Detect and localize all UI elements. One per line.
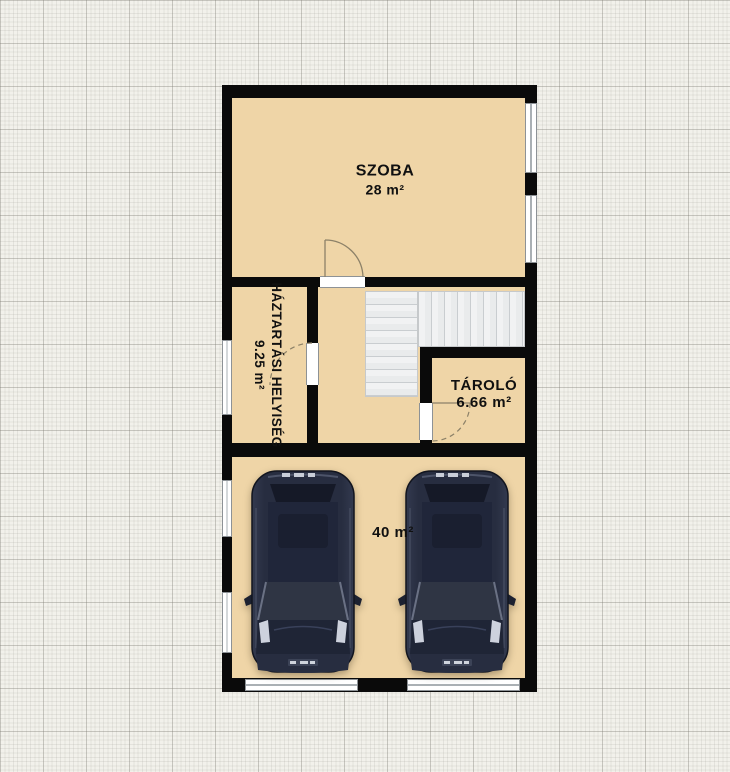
room-area-tarolo: 6.66 m² bbox=[451, 394, 517, 411]
stair-run-left[interactable] bbox=[365, 291, 418, 397]
floor-plan: SZOBA 28 m² HÁZTARTÁSI HELYISÉG 9.25 m² … bbox=[222, 85, 537, 692]
room-label-tarolo: TÁROLÓ 6.66 m² bbox=[451, 377, 517, 411]
room-area-haztartasi: 9.25 m² bbox=[251, 282, 268, 448]
garage-door-right[interactable] bbox=[407, 679, 520, 691]
room-name-szoba: SZOBA bbox=[356, 162, 415, 181]
wall-tarolo-top bbox=[420, 347, 525, 358]
room-area-szoba: 28 m² bbox=[356, 181, 415, 199]
window-garage-left-1[interactable] bbox=[222, 480, 232, 537]
room-label-garage: 40 m² bbox=[372, 524, 414, 542]
room-label-szoba: SZOBA 28 m² bbox=[356, 162, 415, 199]
window-szoba-right-1[interactable] bbox=[525, 103, 537, 173]
door-opening-szoba[interactable] bbox=[320, 276, 365, 288]
room-name-tarolo: TÁROLÓ bbox=[451, 377, 517, 394]
floorplan-canvas: SZOBA 28 m² HÁZTARTÁSI HELYISÉG 9.25 m² … bbox=[0, 0, 730, 772]
garage-door-left[interactable] bbox=[245, 679, 358, 691]
car-2[interactable] bbox=[398, 468, 516, 675]
window-haztartasi-left[interactable] bbox=[222, 340, 232, 415]
wall-exterior-right bbox=[525, 85, 537, 692]
car-1[interactable] bbox=[244, 468, 362, 675]
room-label-haztartasi: HÁZTARTÁSI HELYISÉG 9.25 m² bbox=[251, 282, 285, 448]
window-szoba-right-2[interactable] bbox=[525, 195, 537, 263]
wall-exterior-top bbox=[222, 85, 537, 98]
window-garage-left-2[interactable] bbox=[222, 592, 232, 653]
room-area-garage: 40 m² bbox=[372, 524, 414, 542]
door-opening-tarolo[interactable] bbox=[419, 403, 433, 440]
door-opening-haztartasi[interactable] bbox=[306, 343, 319, 385]
stair-run-top[interactable] bbox=[418, 291, 525, 347]
room-name-haztartasi: HÁZTARTÁSI HELYISÉG bbox=[268, 282, 285, 448]
